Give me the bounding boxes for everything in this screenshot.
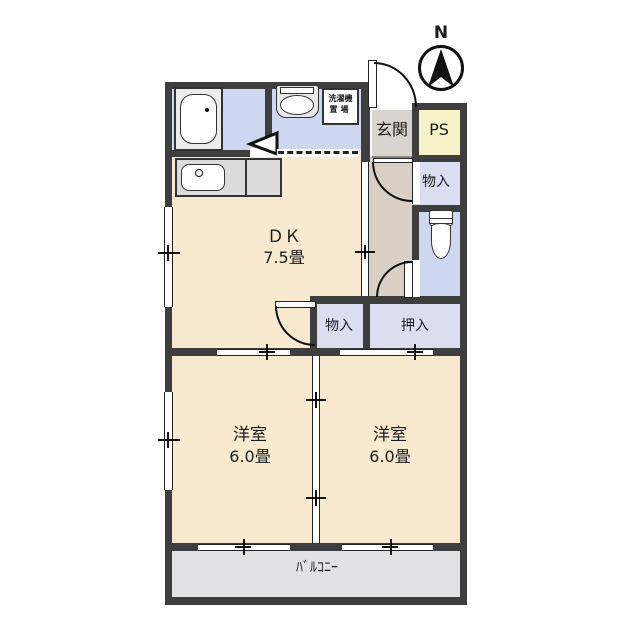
tick	[266, 344, 268, 360]
tick	[158, 252, 180, 254]
wall-hall-bottom	[310, 296, 467, 304]
washbasin-icon	[276, 85, 319, 118]
ps-label: PS	[417, 121, 461, 139]
tick	[243, 539, 245, 555]
wall-ps-bottom	[412, 155, 467, 162]
partition-bedrooms	[312, 356, 320, 543]
toilet-opening	[412, 260, 420, 297]
dk-size-label: 7.5畳	[228, 249, 340, 267]
tick	[167, 245, 169, 261]
wall-toilet-left	[412, 205, 419, 260]
balcony-label: ﾊﾞﾙｺﾆｰ	[232, 560, 402, 576]
sliding-door-dk-bedroom	[217, 349, 290, 356]
laundry-box: 洗濯機 置場	[322, 88, 359, 125]
kitchen-counter	[175, 158, 282, 197]
bedroom-right-name-label: 洋室	[328, 426, 452, 446]
dk-name-label: ＤＫ	[228, 228, 340, 248]
wall-bath-bottom	[165, 150, 250, 157]
laundry-label-line2: 置場	[324, 105, 357, 114]
kitchen-sink-icon	[181, 164, 225, 191]
genkan-label: 玄関	[370, 121, 414, 139]
storage-upper-label: 物入	[412, 174, 460, 190]
tick	[315, 392, 317, 408]
toilet-icon	[428, 210, 454, 260]
tick	[390, 539, 392, 555]
floor-plan: 洗濯機 置場 N 玄関 PS 物入 ＤＫ 7.5畳 物入 押入 洋室 6.0畳 …	[0, 0, 640, 640]
faucet-icon	[195, 169, 203, 177]
north-label: N	[429, 24, 453, 44]
compass-icon	[418, 45, 464, 91]
bedroom-left-name-label: 洋室	[188, 426, 312, 446]
bedroom-left-size-label: 6.0畳	[188, 448, 312, 466]
tick	[167, 432, 169, 448]
tick	[315, 490, 317, 506]
laundry-label-line1: 洗濯機	[324, 94, 357, 103]
wall-left-outer	[165, 82, 172, 605]
wall-balcony-bottom	[165, 597, 467, 605]
wall-bath-divider	[265, 82, 272, 137]
wall-top-right-block	[412, 103, 467, 110]
sliding-door-dk-hall	[361, 162, 369, 296]
tick	[414, 344, 416, 360]
tick	[158, 439, 180, 441]
folding-door-icon	[246, 130, 280, 158]
bathtub-icon	[174, 87, 223, 151]
entry-door-arc	[374, 62, 417, 107]
bedroom-right-size-label: 6.0畳	[328, 448, 452, 466]
tick	[364, 245, 366, 259]
counter-divider	[245, 160, 247, 195]
storage-mid-label: 物入	[313, 318, 365, 334]
dashed-opening	[278, 151, 358, 154]
oshiire-label: 押入	[386, 318, 444, 334]
